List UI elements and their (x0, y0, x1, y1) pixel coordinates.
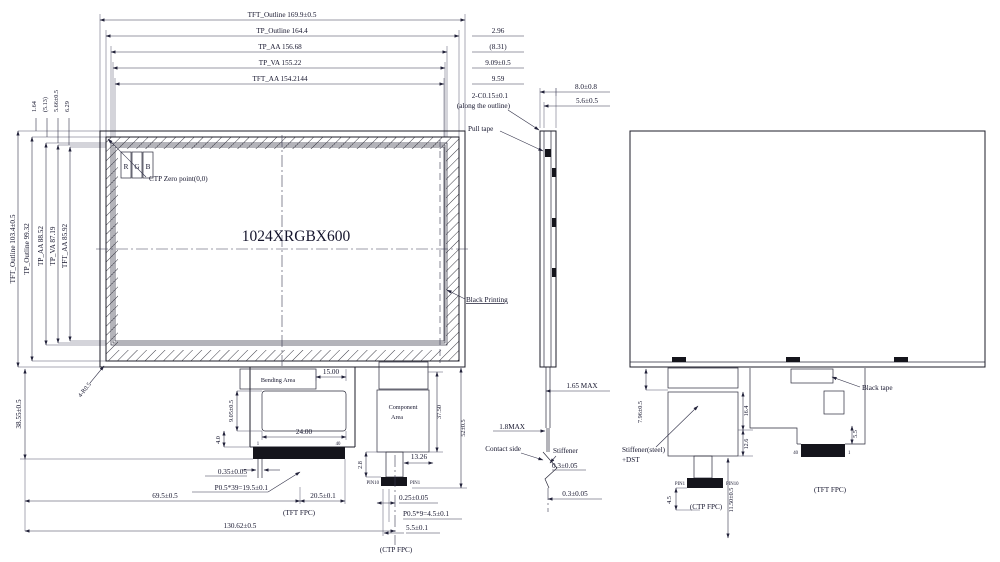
dim-tp-va-h: TP_VA 155.22 (259, 59, 302, 67)
bottom-height-dimension: 38.55±0.5 (15, 369, 253, 531)
component-area-line1: Component (389, 404, 418, 411)
side-top-dimensions: 8.0±0.8 5.6±0.5 (540, 83, 610, 128)
rear-view: PIN1 PIN10 7.96±0.5 16.4 12.6 4.5 (CTP F… (622, 131, 985, 538)
pin-40-label: 40 (336, 442, 341, 447)
dim-tft-outline-v: TFT_Outline 103.4±0.5 (9, 214, 17, 283)
tft-fpc-rear: 40 1 5.5 Black tape (TFT FPC) (750, 368, 893, 494)
subpixel-b-label: B (146, 163, 151, 171)
component-area-line2: Area (391, 414, 403, 421)
dim-tp-outline-v: TP_Outline 99.32 (23, 223, 31, 275)
ctp-stiffener-top (379, 362, 428, 389)
tft-fpc-label: (TFT FPC) (283, 509, 316, 517)
dim-025: 0.25±0.05 (399, 494, 429, 502)
dim-796: 7.96±0.5 (637, 401, 644, 423)
pin1-label: PIN1 (410, 481, 421, 486)
dim-45-rear: 4.5 (666, 496, 673, 504)
black-tape (791, 369, 833, 383)
rear-stiffener-label-line2: +DST (622, 456, 640, 464)
dim-03-lower: 0.3±0.05 (562, 490, 588, 498)
dim-tp-va-v: TP_VA 87.19 (49, 226, 57, 265)
stiffener-label: Stiffener (553, 447, 579, 455)
dim-28: 2.8 (357, 461, 364, 469)
dim-40: 4.0 (215, 436, 222, 444)
subpixel-r-label: R (124, 163, 129, 171)
dim-offset-959: 9.59 (492, 75, 505, 83)
front-view: TFT_Outline 169.9±0.5 TP_Outline 164.4 T… (9, 11, 524, 554)
dim-pitch-39: P0.5*39=19.5±0.1 (215, 484, 269, 492)
tft-connector (253, 447, 345, 459)
dim-52: 52±0.5 (460, 419, 467, 436)
black-printing-label: Black Printing (466, 296, 508, 304)
rear-stiffener-label-line1: Stiffener(steel) (622, 446, 666, 454)
dim-1326: 13.26 (411, 453, 428, 461)
dim-695: 69.5±0.5 (152, 492, 178, 500)
rear-ctp-neck (694, 456, 712, 478)
side-profile (540, 131, 556, 367)
dim-tft-outline-h: TFT_Outline 169.9±0.5 (248, 11, 317, 19)
dim-56: 5.6±0.5 (576, 97, 598, 105)
dim-13062: 130.62±0.5 (224, 522, 257, 530)
corner-radius-callout: 4-R0.5 (77, 366, 104, 399)
chamfer-label-line1: 2-C0.15±0.1 (472, 92, 509, 100)
dim-55-ctp: 5.5±0.1 (406, 524, 428, 532)
ctp-fpc-neck (386, 452, 403, 477)
component-area-box (377, 390, 429, 452)
ctp-fpc-label: (CTP FPC) (380, 546, 413, 554)
display-module-drawing: TFT_Outline 169.9±0.5 TP_Outline 164.4 T… (0, 0, 1000, 562)
dim-tft-aa-h: TFT_AA 154.2144 (252, 75, 308, 83)
pin-1-label: 1 (257, 442, 260, 447)
dim-15: 15.00 (323, 368, 340, 376)
front-right-offset-dimensions: 2.96 (8.31) 9.09±0.5 9.59 (472, 27, 524, 84)
ctp-connector (381, 477, 407, 486)
pin10-label: PIN10 (366, 481, 379, 486)
dim-offset-566: 5.66±0.5 (53, 90, 60, 112)
rear-tft-fpc-label: (TFT FPC) (814, 486, 847, 494)
black-tape-label: Black tape (862, 384, 893, 392)
dim-03-upper: 0.3±0.05 (552, 462, 578, 470)
dim-pitch-9: P0.5*9=4.5±0.1 (403, 510, 450, 518)
dim-offset-909: 9.09±0.5 (485, 59, 511, 67)
rear-ctp-fpc-label: (CTP FPC) (690, 503, 723, 511)
ctp-zero-point-label: CTP Zero point(0,0) (149, 175, 208, 183)
side-fpc-tail (543, 367, 557, 512)
ctp-fpc-rear: PIN1 PIN10 7.96±0.5 16.4 12.6 4.5 (CTP F… (622, 368, 753, 538)
dim-375: 37.50 (436, 405, 443, 419)
dim-164: 16.4 (743, 406, 750, 417)
dim-1150: 11.50±0.5 (728, 488, 735, 513)
pull-tape-callout: Pull tape (468, 125, 543, 151)
contact-side-label: Contact side (485, 445, 521, 453)
dim-tp-outline-h: TP_Outline 164.4 (256, 27, 308, 35)
dim-offset-296: 2.96 (492, 27, 505, 35)
pull-tape-label: Pull tape (468, 125, 493, 133)
corner-radius-label: 4-R0.5 (77, 381, 93, 399)
rear-pin40-label: 40 (793, 451, 798, 456)
dim-205: 20.5±0.1 (310, 492, 336, 500)
dim-80: 8.0±0.8 (575, 83, 597, 91)
dim-3855: 38.55±0.5 (15, 399, 23, 429)
dim-offset-164: 1.64 (31, 101, 38, 112)
rear-ctp-connector (687, 478, 723, 488)
chamfer-label-line2: (along the outline) (457, 102, 511, 110)
dim-18: 1.8MAX (499, 423, 526, 431)
dim-offset-831: (8.31) (489, 43, 507, 51)
dim-tp-aa-v: TP_AA 88.52 (37, 226, 45, 266)
side-bottom-dimensions: 1.65 MAX 1.8MAX Contact side Stiffener 0… (485, 382, 610, 499)
bending-region (262, 391, 346, 431)
pull-tape-tab (545, 149, 551, 157)
dim-55-rear: 5.5 (852, 430, 859, 438)
dim-165: 1.65 MAX (566, 382, 598, 390)
dim-tp-aa-h: TP_AA 156.68 (258, 43, 302, 51)
rear-stiffener (668, 392, 738, 456)
rear-tft-connector (801, 444, 845, 457)
rear-pin1-label: PIN1 (675, 482, 686, 487)
drawing-sheet: TFT_Outline 169.9±0.5 TP_Outline 164.4 T… (0, 0, 1000, 562)
dim-035: 0.35±0.05 (218, 468, 248, 476)
dim-offset-513: (5.13) (42, 97, 49, 112)
rear-pin1b-label: 1 (848, 451, 851, 456)
dim-tft-aa-v: TFT_AA 85.92 (61, 223, 69, 268)
bending-area-label: Bending Area (261, 377, 295, 384)
resolution-label: 1024XRGBX600 (242, 228, 351, 245)
ctp-fpc-front: Component Area 37.50 52±0.5 13.26 2.8 PI… (357, 362, 467, 554)
dim-24: 24.00 (296, 428, 313, 436)
dim-126: 12.6 (743, 439, 750, 450)
rear-panel-outline (630, 131, 985, 367)
dim-offset-629: 6.29 (64, 101, 71, 112)
dim-905: 9.05±0.5 (228, 400, 235, 422)
